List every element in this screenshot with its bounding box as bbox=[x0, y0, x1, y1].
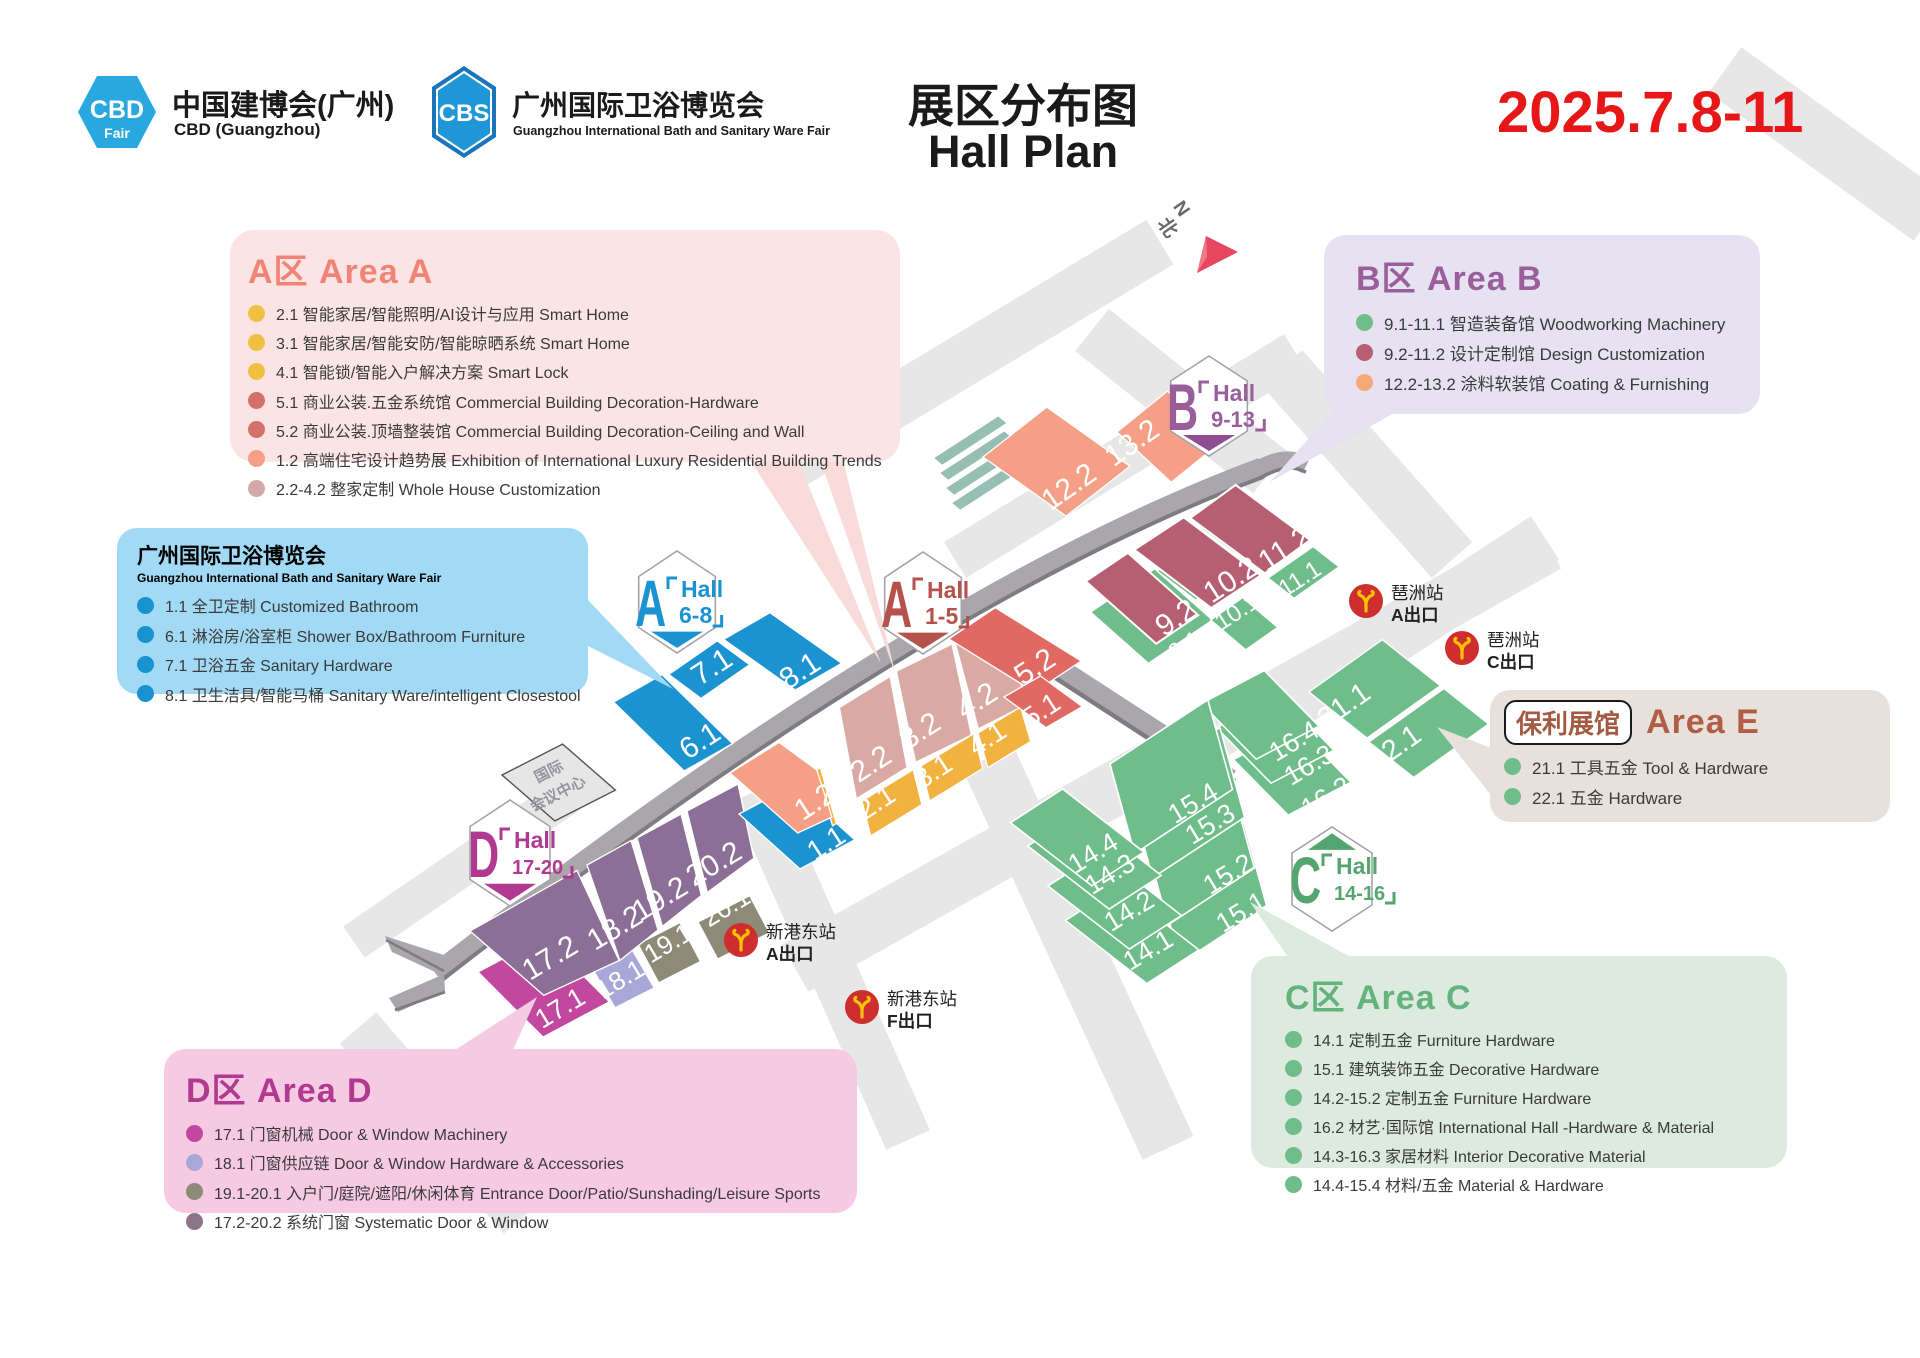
svg-text:新港东站: 新港东站 bbox=[766, 922, 836, 942]
svg-text:Hall: Hall bbox=[1336, 853, 1378, 879]
svg-text:CBD: CBD bbox=[90, 96, 144, 124]
svg-text:新港东站: 新港东站 bbox=[887, 989, 957, 1009]
svg-text:C: C bbox=[1290, 844, 1321, 917]
svg-text:B: B bbox=[1167, 371, 1198, 444]
svg-text:Hall: Hall bbox=[927, 577, 969, 603]
svg-text:Hall: Hall bbox=[681, 576, 723, 602]
svg-text:14-16: 14-16 bbox=[1334, 883, 1385, 905]
svg-text:9-13: 9-13 bbox=[1211, 407, 1255, 432]
svg-text:琶洲站: 琶洲站 bbox=[1487, 630, 1540, 650]
svg-text:F出口: F出口 bbox=[887, 1011, 933, 1031]
svg-text:6-8: 6-8 bbox=[679, 602, 712, 628]
svg-text:A出口: A出口 bbox=[1391, 605, 1439, 625]
svg-text:Hall: Hall bbox=[1213, 380, 1255, 406]
svg-text:A: A bbox=[881, 568, 912, 641]
svg-text:17-20: 17-20 bbox=[512, 857, 563, 879]
svg-text:1-5: 1-5 bbox=[925, 603, 958, 629]
svg-text:琶洲站: 琶洲站 bbox=[1391, 583, 1444, 603]
svg-text:C出口: C出口 bbox=[1487, 652, 1535, 672]
svg-text:CBS: CBS bbox=[439, 100, 490, 127]
svg-text:Fair: Fair bbox=[104, 125, 130, 141]
svg-text:A出口: A出口 bbox=[766, 944, 814, 964]
svg-text:A: A bbox=[635, 567, 666, 640]
svg-text:D: D bbox=[468, 818, 499, 891]
svg-text:Hall: Hall bbox=[514, 827, 556, 853]
